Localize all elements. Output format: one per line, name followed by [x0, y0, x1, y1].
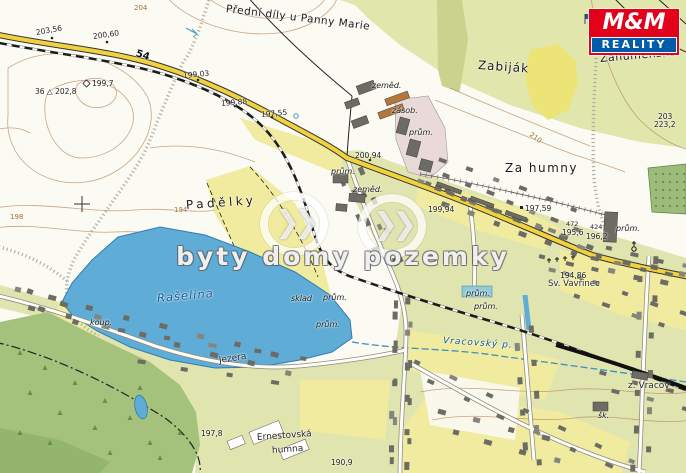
map-artwork: [0, 0, 686, 473]
mm-reality-logo: M&M REALITY: [589, 9, 679, 55]
logo-reality-text: REALITY: [591, 37, 677, 53]
terrain-areas: [0, 0, 686, 473]
map-canvas[interactable]: Přední díly u Panny MarieZabijákZáhumens…: [0, 0, 686, 473]
logo-mm-text: M&M: [591, 11, 677, 35]
